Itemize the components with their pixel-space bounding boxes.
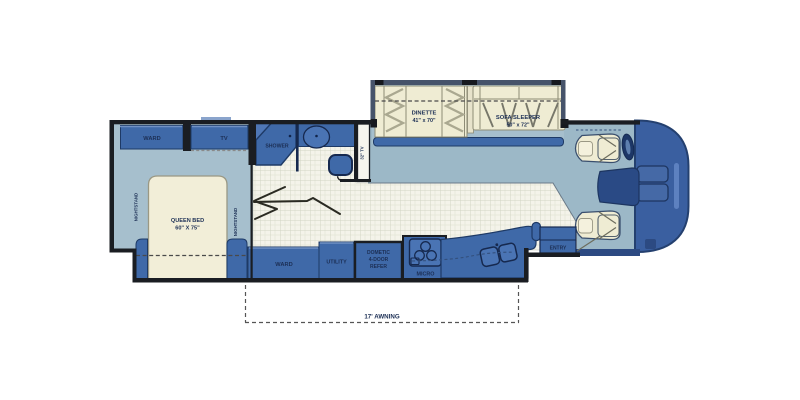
svg-text:DINETTE: DINETTE — [412, 111, 437, 117]
svg-text:WARD: WARD — [143, 136, 160, 142]
svg-text:UTILITY: UTILITY — [326, 260, 347, 266]
svg-text:4-DOOR: 4-DOOR — [369, 257, 389, 263]
svg-text:ENTRY: ENTRY — [550, 246, 567, 252]
svg-text:60" X 75": 60" X 75" — [175, 226, 200, 232]
svg-text:MICRO: MICRO — [417, 272, 435, 278]
svg-text:SOFA SLEEPER: SOFA SLEEPER — [496, 115, 541, 121]
svg-text:DOMETIC: DOMETIC — [367, 250, 390, 256]
svg-text:QUEEN BED: QUEEN BED — [171, 218, 204, 224]
svg-text:32" TV: 32" TV — [360, 146, 365, 159]
svg-text:WARD: WARD — [275, 262, 292, 268]
svg-text:41" x 70": 41" x 70" — [412, 118, 436, 124]
svg-text:NIGHTSTAND: NIGHTSTAND — [233, 208, 238, 236]
svg-text:TV: TV — [220, 136, 227, 142]
svg-text:50" x 72": 50" x 72" — [506, 123, 530, 129]
svg-text:REFER: REFER — [370, 264, 387, 270]
svg-text:17' AWNING: 17' AWNING — [364, 314, 399, 321]
svg-text:SHOWER: SHOWER — [265, 144, 289, 150]
svg-text:NIGHTSTAND: NIGHTSTAND — [134, 193, 139, 221]
